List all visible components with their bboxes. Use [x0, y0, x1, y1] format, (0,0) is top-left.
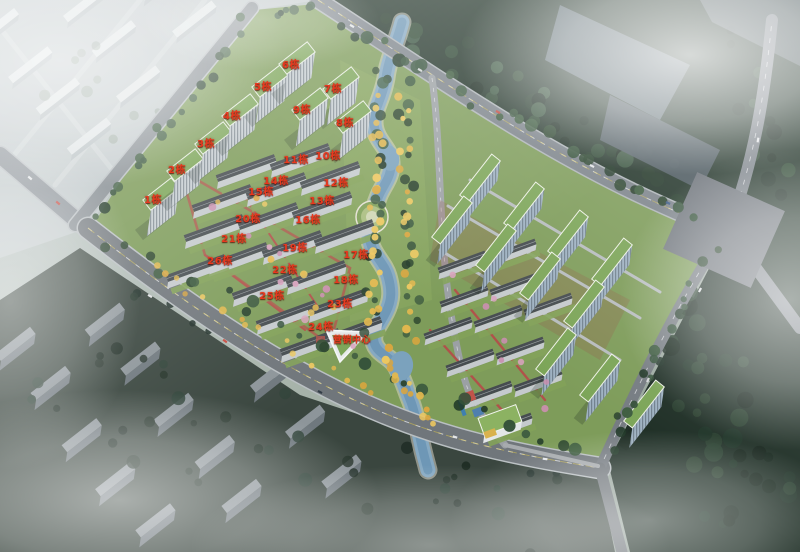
aerial-rendering: 1栋2栋3栋4栋5栋6栋7栋8栋9栋10栋11栋12栋13栋14栋15栋16栋1…	[0, 0, 800, 552]
cloud-fog-overlay	[0, 0, 800, 552]
aerial-rendering-scene	[0, 0, 800, 552]
